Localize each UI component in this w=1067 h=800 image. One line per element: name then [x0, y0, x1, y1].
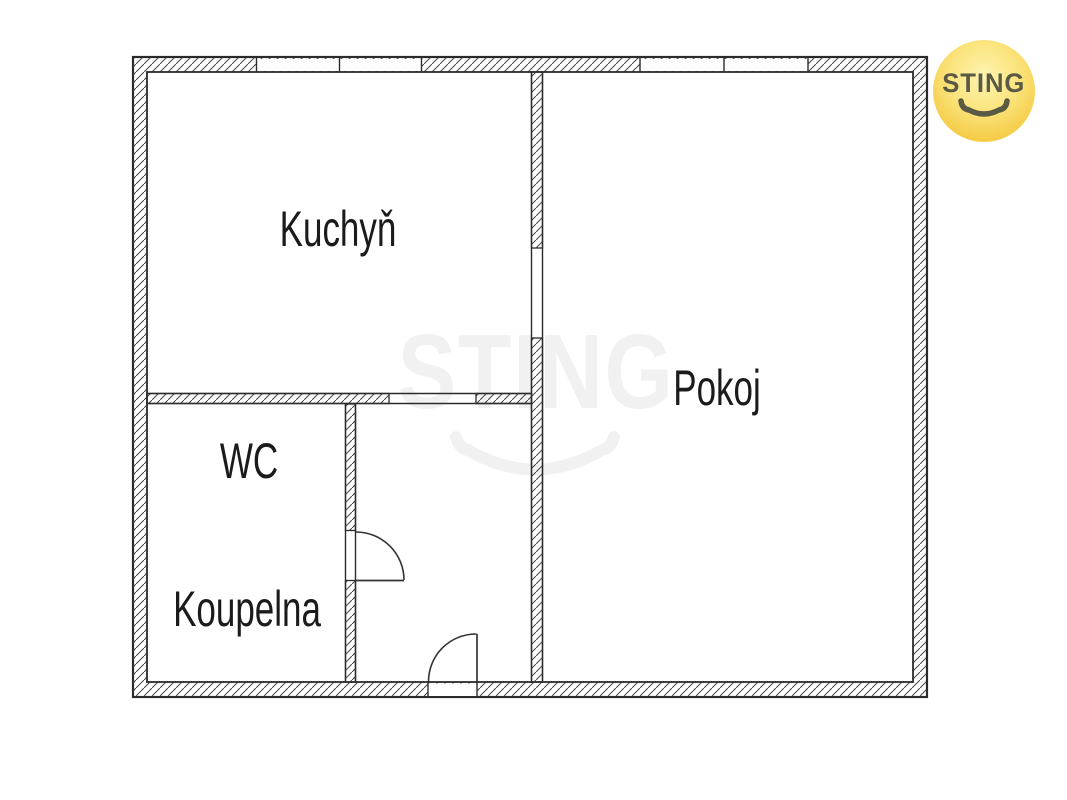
- window-kuchyn: [257, 58, 422, 72]
- wall-kuchyn-pokoj: [532, 72, 543, 682]
- door-entrance-swing-arc: [429, 634, 477, 682]
- floorplan-drawing: STING: [0, 0, 1067, 800]
- room-label-wc: WC: [220, 434, 278, 490]
- wall-segment: [346, 404, 356, 531]
- door-entrance-opening: [428, 684, 477, 697]
- floorplan-page: STING: [0, 0, 1067, 800]
- wall-segment: [532, 338, 543, 682]
- wall-segment: [532, 72, 543, 248]
- window-pokoj: [640, 58, 808, 72]
- room-label-pokoj: Pokoj: [673, 361, 761, 417]
- wall-segment: [476, 394, 532, 404]
- sting-logo-smile-icon: [955, 97, 1013, 119]
- wall-koupelna-hall: [346, 404, 356, 682]
- room-label-koupelna: Koupelna: [173, 582, 321, 638]
- door-koupelna-swing-arc: [356, 532, 404, 580]
- door-koupelna: [356, 532, 405, 581]
- sting-logo-text: STING: [942, 70, 1025, 97]
- sting-logo: STING: [933, 40, 1035, 142]
- wall-segment: [147, 394, 389, 404]
- room-label-kuchyn: Kuchyň: [280, 202, 397, 258]
- wall-segment: [346, 581, 356, 683]
- door-entrance: [428, 634, 477, 697]
